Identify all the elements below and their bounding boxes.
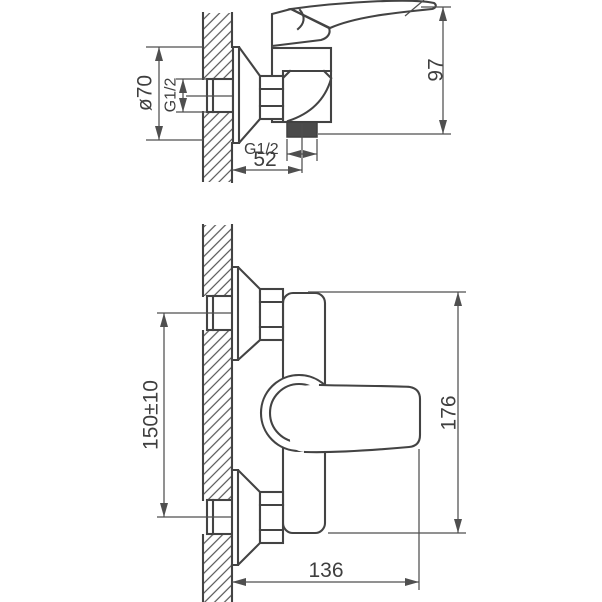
handle-lever bbox=[272, 1, 436, 46]
technical-drawing: ø70 G1/2 97 G1/2 52 bbox=[0, 0, 602, 602]
dim-outlet-offset-label: 52 bbox=[253, 148, 276, 171]
dim-outlet-offset: 52 bbox=[232, 148, 302, 171]
plan-view: 150±10 176 136 bbox=[140, 225, 467, 602]
flange bbox=[233, 47, 260, 143]
technical-drawing-page: ø70 G1/2 97 G1/2 52 bbox=[0, 0, 602, 602]
wall-hatch-2 bbox=[203, 225, 232, 602]
dim-inlet-spacing: 150±10 bbox=[140, 313, 165, 517]
dim-flange-diameter-label: ø70 bbox=[134, 75, 157, 111]
dim-inlet-thread: G1/2 bbox=[163, 78, 208, 113]
handle-lever-2 bbox=[290, 385, 420, 452]
dim-inlet-spacing-label: 150±10 bbox=[140, 380, 163, 450]
lower-inlet-pipe bbox=[157, 500, 240, 534]
dim-overall-length-label: 176 bbox=[438, 395, 461, 430]
dim-inlet-thread-label: G1/2 bbox=[163, 78, 180, 113]
dim-projection-label: 136 bbox=[308, 559, 343, 582]
upper-flange bbox=[232, 267, 283, 360]
hex-nut bbox=[260, 76, 283, 119]
side-view: ø70 G1/2 97 G1/2 52 bbox=[134, 0, 452, 182]
dim-height-label: 97 bbox=[425, 58, 448, 81]
inlet-pipe bbox=[186, 79, 240, 112]
lower-flange bbox=[232, 470, 283, 565]
upper-inlet-pipe bbox=[157, 296, 240, 330]
